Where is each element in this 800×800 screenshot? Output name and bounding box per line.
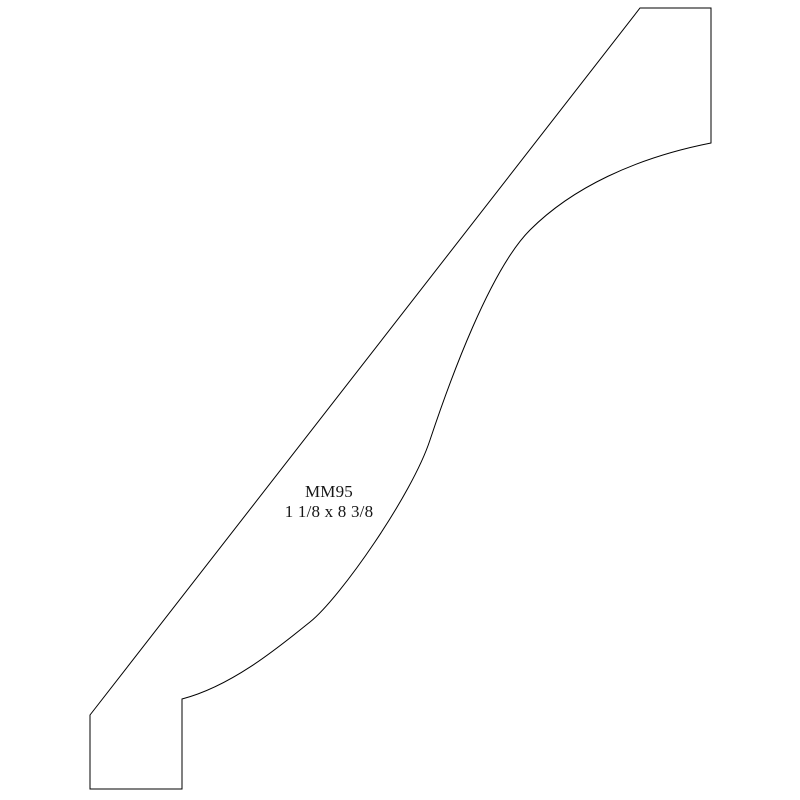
molding-profile-outline <box>90 8 711 789</box>
molding-profile-drawing <box>0 0 800 800</box>
profile-size: 1 1/8 x 8 3/8 <box>229 502 429 522</box>
profile-label: MM95 1 1/8 x 8 3/8 <box>229 482 429 522</box>
drawing-canvas: MM95 1 1/8 x 8 3/8 <box>0 0 800 800</box>
profile-code: MM95 <box>229 482 429 502</box>
